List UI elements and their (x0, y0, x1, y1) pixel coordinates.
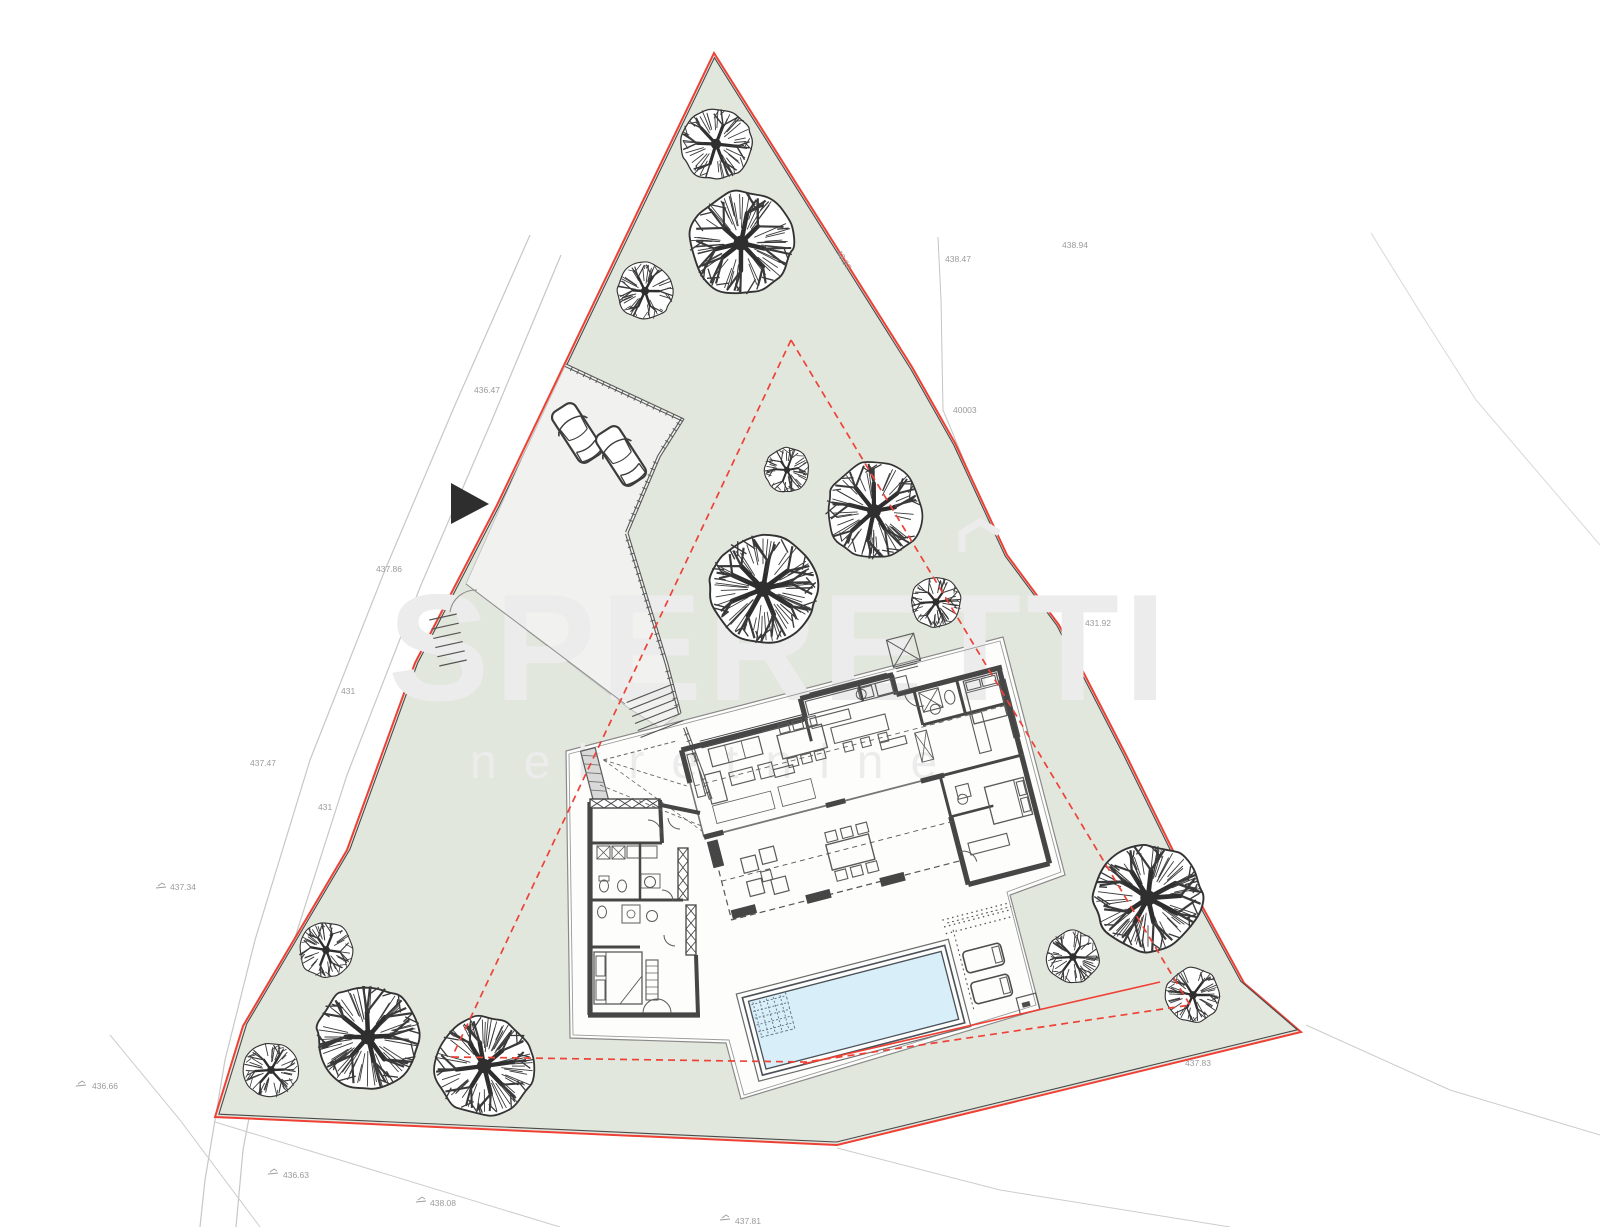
svg-text:437.86: 437.86 (376, 564, 402, 574)
svg-text:438.08: 438.08 (430, 1198, 456, 1208)
svg-text:438.94: 438.94 (1062, 240, 1088, 250)
svg-text:431: 431 (341, 686, 355, 696)
svg-text:437.83: 437.83 (1185, 1058, 1211, 1068)
svg-text:436.66: 436.66 (92, 1081, 118, 1091)
svg-text:431.92: 431.92 (1085, 618, 1111, 628)
svg-text:437.34: 437.34 (170, 882, 196, 892)
svg-text:437.47: 437.47 (250, 758, 276, 768)
svg-text:437.81: 437.81 (735, 1216, 761, 1226)
svg-text:40003: 40003 (953, 405, 977, 415)
svg-text:438.47: 438.47 (945, 254, 971, 264)
svg-text:436.63: 436.63 (283, 1170, 309, 1180)
svg-text:431: 431 (318, 802, 332, 812)
svg-text:436.47: 436.47 (474, 385, 500, 395)
